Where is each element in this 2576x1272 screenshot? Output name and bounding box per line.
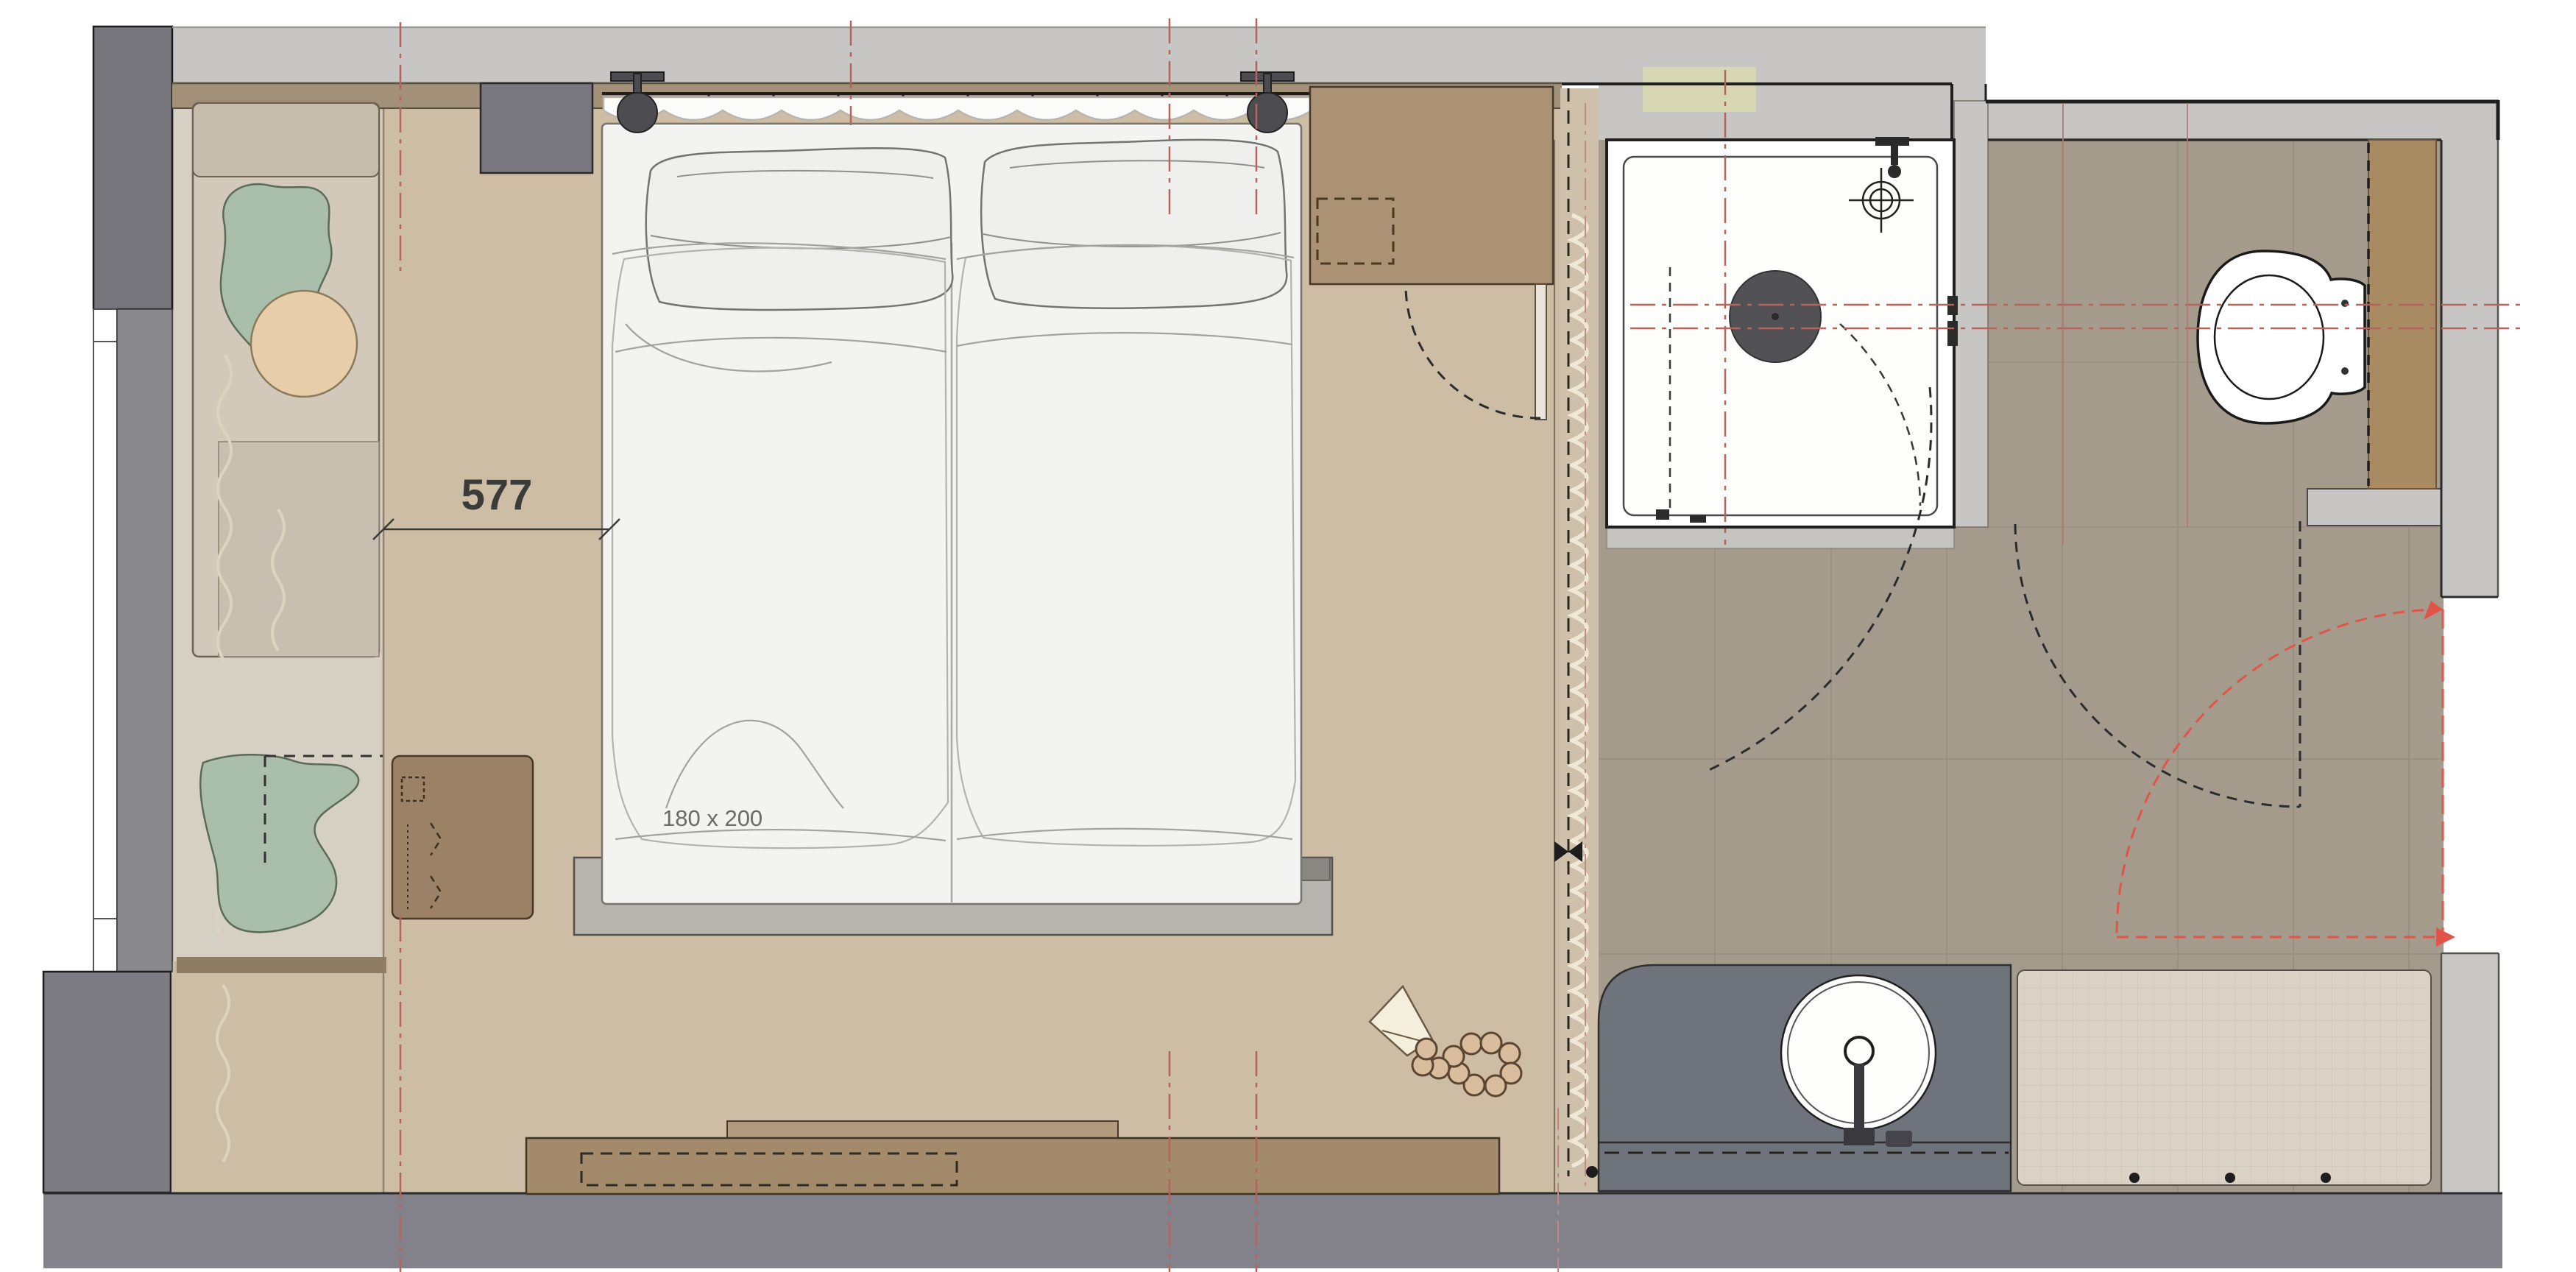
svg-text:577: 577 [461, 471, 533, 519]
svg-text:180 x 200: 180 x 200 [662, 805, 762, 831]
